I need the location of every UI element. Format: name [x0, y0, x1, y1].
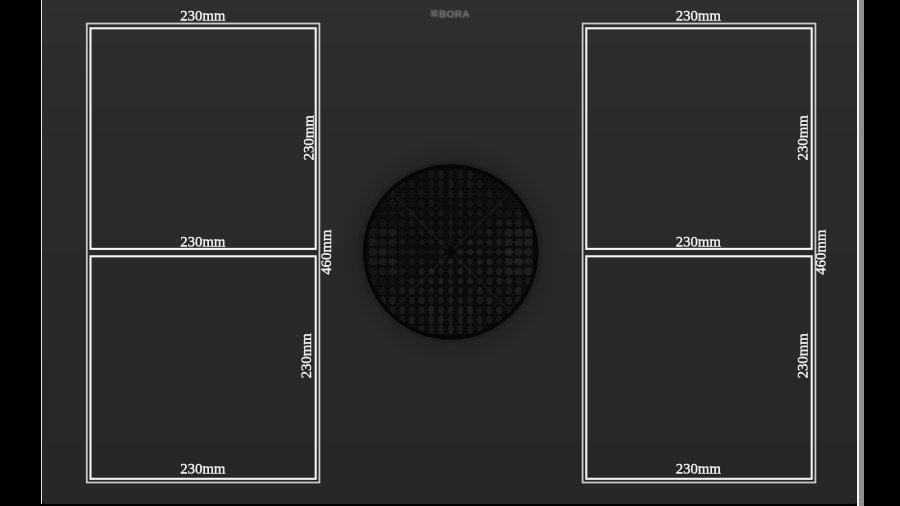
svg-text:230mm: 230mm [180, 461, 226, 477]
svg-text:460mm: 460mm [813, 229, 829, 275]
svg-text:460mm: 460mm [319, 229, 335, 275]
svg-text:230mm: 230mm [302, 115, 318, 161]
svg-text:230mm: 230mm [796, 333, 812, 379]
svg-text:230mm: 230mm [796, 115, 812, 161]
svg-text:230mm: 230mm [299, 333, 315, 379]
svg-text:230mm: 230mm [676, 9, 722, 25]
svg-text:230mm: 230mm [180, 234, 226, 250]
svg-text:230mm: 230mm [676, 461, 722, 477]
svg-text:230mm: 230mm [180, 9, 226, 25]
svg-text:230mm: 230mm [676, 234, 722, 250]
